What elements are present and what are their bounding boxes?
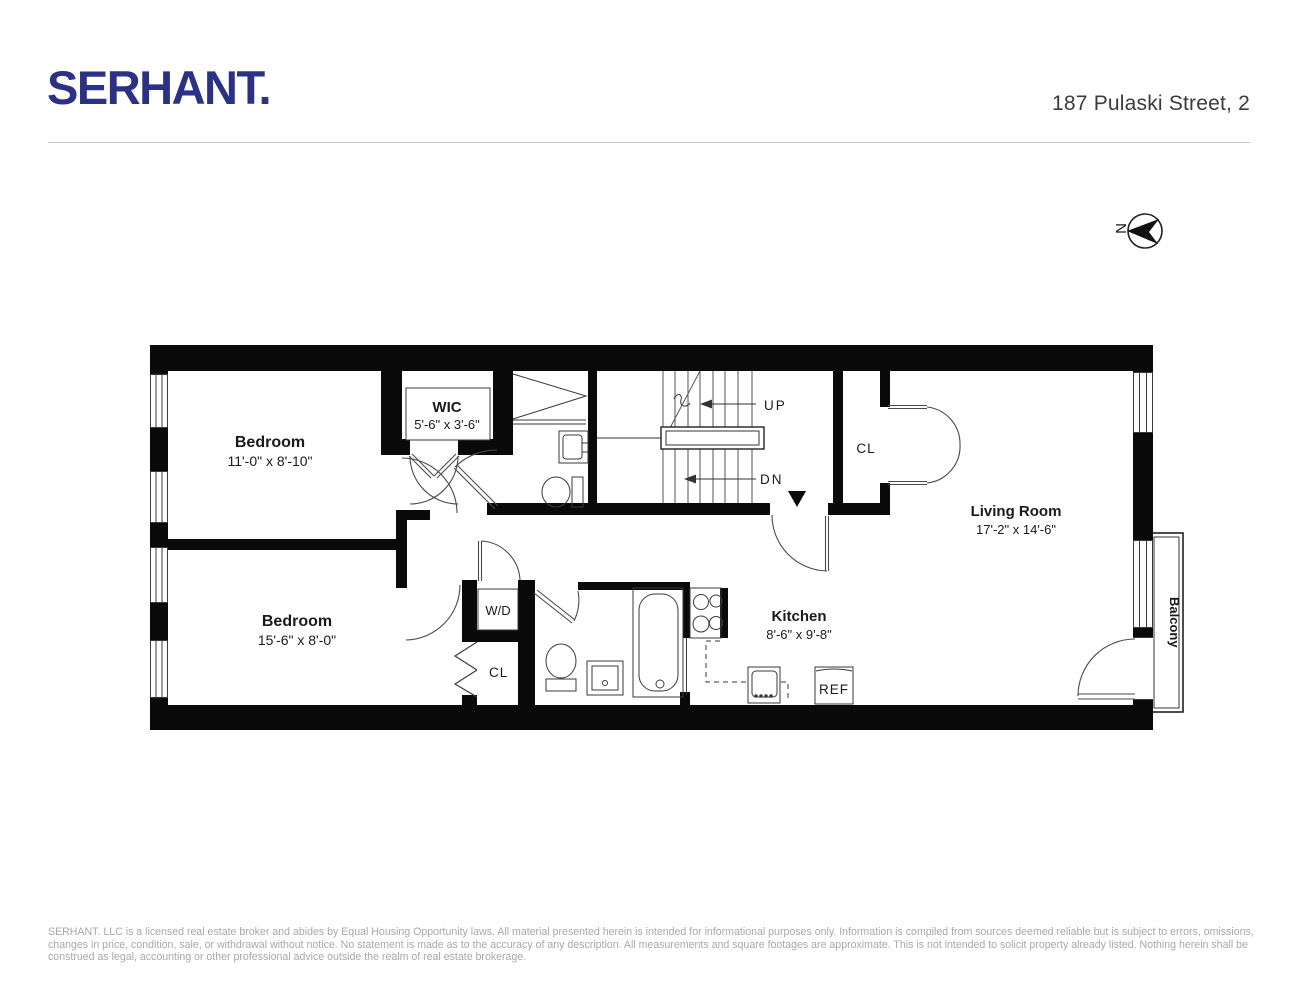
window (150, 374, 168, 428)
shelf-symbol (513, 374, 586, 419)
window (1133, 540, 1153, 628)
kitchen-door (772, 515, 829, 571)
room-dims: 15'-6" x 8'-0" (258, 632, 336, 648)
balcony-door (1078, 639, 1135, 699)
bedroom2-door (406, 585, 460, 640)
wic-room: WIC 5'-6" x 3'-6" (406, 388, 490, 440)
sink (559, 431, 588, 463)
entry-marker-triangle (788, 491, 806, 507)
balcony-door-opening (1133, 637, 1153, 700)
washer-dryer-label: W/D (485, 603, 510, 618)
room-dims: 5'-6" x 3'-6" (414, 417, 480, 432)
cl-doors (888, 406, 927, 485)
wd-door (479, 541, 521, 581)
living-room-label: Living Room 17'-2" x 14'-6" (971, 503, 1062, 537)
balcony-label: Balcony (1167, 597, 1182, 648)
bathtub (633, 588, 683, 697)
bifold-closet-door (455, 642, 477, 697)
legal-disclaimer: SERHANT. LLC is a licensed real estate b… (48, 926, 1254, 964)
vanity-sink (587, 661, 623, 695)
room-name: Bedroom (262, 613, 332, 630)
compass-north-label: N (1112, 223, 1129, 235)
bath2-door (534, 590, 579, 623)
room-dims: 17'-2" x 14'-6" (976, 522, 1056, 537)
window (150, 640, 168, 698)
window (150, 471, 168, 523)
half-bath (513, 374, 588, 507)
stairs-up-label: UP (764, 398, 787, 413)
stove (690, 588, 723, 638)
closet-bottom-label: CL (489, 665, 508, 680)
closet-top-label: CL (856, 441, 875, 456)
room-name: Living Room (971, 503, 1062, 520)
walls (150, 345, 1153, 730)
room-name: WIC (432, 399, 461, 416)
balcony: Balcony (1150, 533, 1183, 712)
toilet (542, 477, 583, 507)
bathroom (546, 588, 687, 697)
room-name: Bedroom (235, 434, 305, 451)
bedroom-1-label: Bedroom 11'-0" x 8'-10" (227, 434, 312, 469)
bedroom-2-label: Bedroom 15'-6" x 8'-0" (258, 613, 336, 648)
wic-doors (409, 454, 459, 478)
floor-plan: N Balcony (0, 0, 1294, 1000)
toilet (546, 644, 576, 691)
stairs-dn-label: DN (760, 472, 784, 487)
kitchen-sink (748, 667, 780, 703)
washer-dryer-unit: W/D (478, 589, 518, 630)
window (1133, 372, 1153, 433)
room-name: Kitchen (771, 608, 826, 625)
compass-icon: N (1112, 214, 1162, 248)
half-bath-door (454, 450, 498, 509)
stair-arrows (684, 400, 806, 508)
refrigerator-label: REF (819, 682, 849, 697)
stair-handrail (661, 427, 764, 449)
window (150, 547, 168, 603)
room-dims: 11'-0" x 8'-10" (227, 453, 312, 469)
kitchen-label: Kitchen 8'-6" x 9'-8" (766, 608, 832, 642)
room-dims: 8'-6" x 9'-8" (766, 627, 832, 642)
